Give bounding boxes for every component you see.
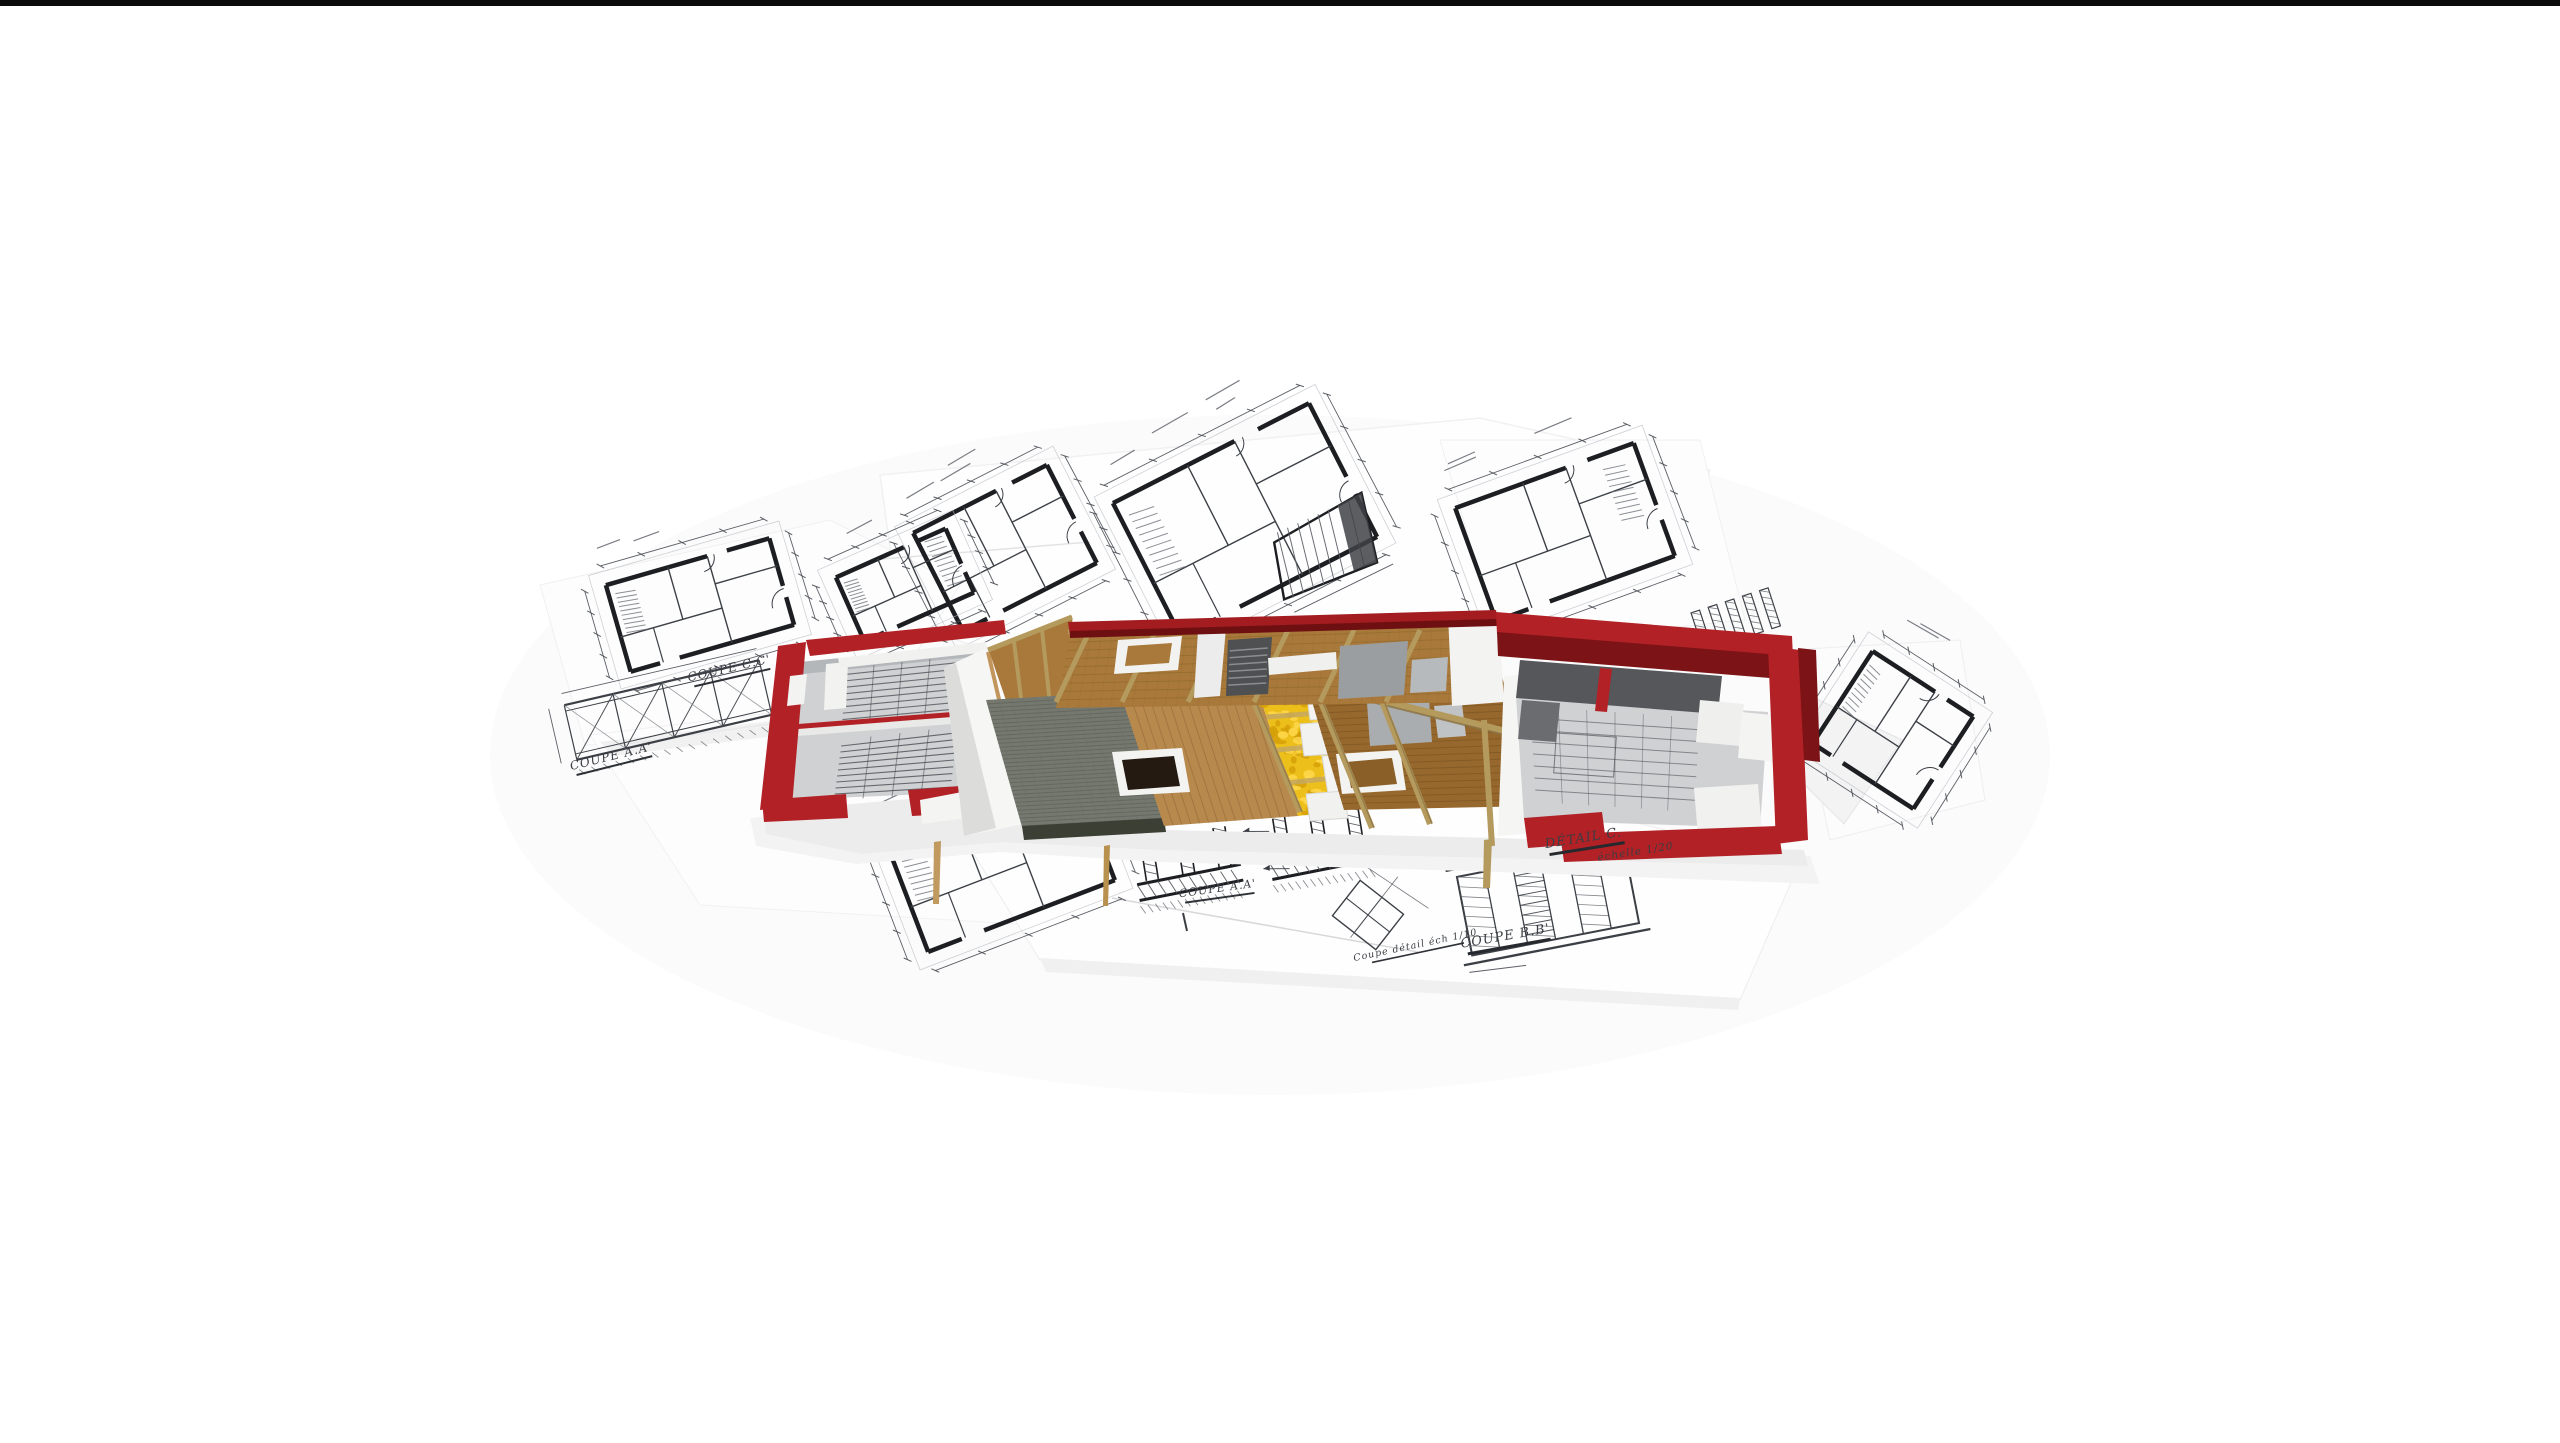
- white-pillar: [824, 662, 848, 710]
- attic-gray-slab: [1338, 641, 1408, 699]
- door-gap: [787, 674, 807, 706]
- white-door-slab: [1696, 700, 1744, 746]
- roof-skylight-window: [1112, 748, 1190, 796]
- stair-opening: [1226, 637, 1272, 696]
- top-border-bar: [0, 0, 2560, 6]
- scene-svg: COUPE C.C' COUPE A.A' COUPE A.A' DÉTAIL …: [0, 0, 2560, 1443]
- photo-canvas: COUPE C.C' COUPE A.A' COUPE A.A' DÉTAIL …: [0, 0, 2560, 1443]
